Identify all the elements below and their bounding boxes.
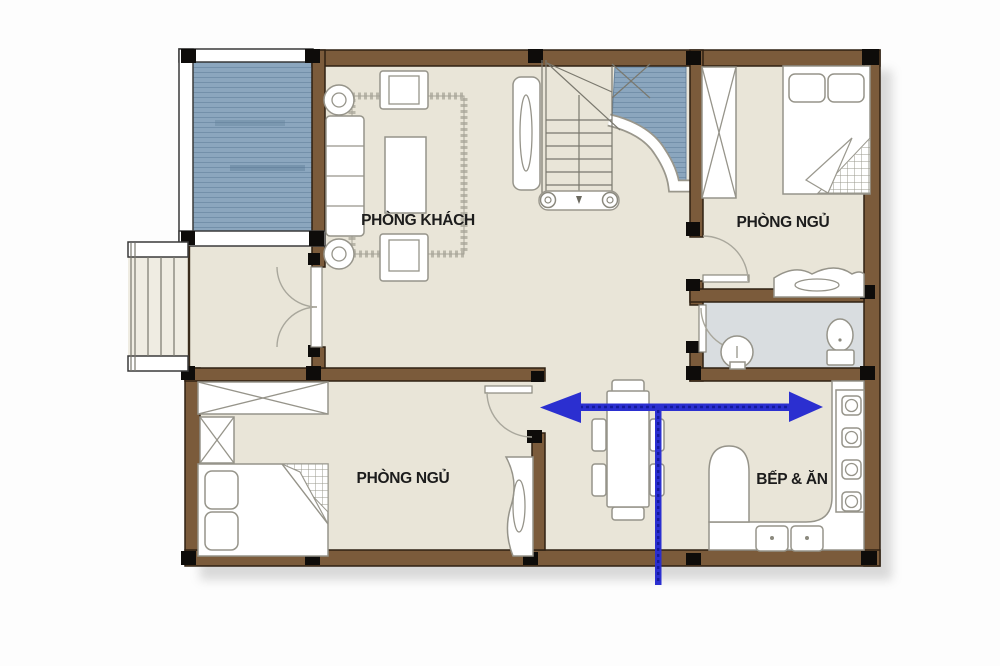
balcony-rail-left bbox=[179, 49, 193, 245]
bedroom-bottom-label: PHÒNG NGỦ bbox=[357, 469, 450, 487]
stove-burner-icon bbox=[842, 428, 861, 447]
newel-post-icon bbox=[541, 193, 556, 208]
pillow-icon bbox=[205, 512, 238, 550]
chair-icon bbox=[592, 419, 606, 451]
coffee-table-icon bbox=[385, 137, 426, 213]
armchair-icon bbox=[380, 71, 428, 109]
counter-peninsula bbox=[709, 446, 749, 522]
wall-bathroom-bottom bbox=[690, 368, 864, 381]
pillow-icon bbox=[205, 471, 238, 509]
wall-top bbox=[312, 50, 880, 66]
dresser-icon bbox=[774, 268, 864, 297]
toilet-icon bbox=[827, 319, 854, 365]
pillow-icon bbox=[828, 74, 864, 102]
stove-burner-icon bbox=[842, 396, 861, 415]
kitchen-label: BẾP & ĂN bbox=[756, 471, 827, 488]
entry-steps-floor bbox=[128, 243, 188, 371]
floor-plan-canvas: PHÒNG KHÁCH PHÒNG NGỦ PHÒNG NGỦ BẾP & ĂN bbox=[0, 0, 1000, 666]
stove-burner-icon bbox=[842, 460, 861, 479]
newel-post-icon bbox=[603, 193, 618, 208]
hall-console-icon bbox=[513, 77, 540, 190]
balcony-deck bbox=[193, 61, 313, 234]
armchair-icon bbox=[380, 234, 428, 281]
chair-icon bbox=[612, 507, 644, 520]
sofa-icon bbox=[326, 116, 364, 236]
side-table-icon bbox=[324, 85, 354, 115]
stove-burner-icon bbox=[842, 492, 861, 511]
side-table-icon bbox=[324, 239, 354, 269]
sink-icon bbox=[721, 336, 753, 369]
bedroom-top-label: PHÒNG NGỦ bbox=[737, 213, 830, 231]
wall-center-east-upper bbox=[690, 50, 703, 237]
pillow-icon bbox=[789, 74, 825, 102]
living-room-label: PHÒNG KHÁCH bbox=[361, 211, 475, 229]
balcony-rail-top bbox=[179, 49, 313, 62]
wall-bedroom-dining bbox=[532, 433, 545, 550]
wardrobe-icon bbox=[200, 417, 234, 463]
wall-hall-bedroom bbox=[185, 368, 545, 381]
closet-icon bbox=[198, 382, 328, 414]
wall-living-west-upper bbox=[312, 50, 325, 233]
balcony-rail-bottom bbox=[179, 231, 325, 246]
bed-icon bbox=[198, 464, 328, 556]
chair-icon bbox=[592, 464, 606, 496]
floor-plan-drawing: PHÒNG KHÁCH PHÒNG NGỦ PHÒNG NGỦ BẾP & ĂN bbox=[0, 0, 1000, 666]
bed-icon bbox=[783, 66, 870, 194]
wardrobe-icon bbox=[702, 67, 736, 198]
